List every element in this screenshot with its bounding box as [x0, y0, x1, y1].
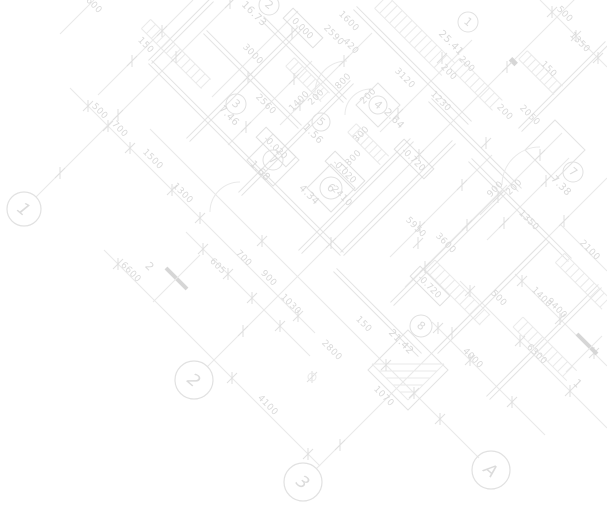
dimension-label: 700	[109, 120, 129, 140]
dimension-label: 2100	[577, 238, 601, 262]
svg-text:-0.720: -0.720	[415, 273, 443, 301]
grid-marker: 2	[175, 361, 213, 399]
dimension-label: 200	[438, 63, 458, 83]
dimension-label: 1500	[140, 147, 164, 171]
dimension-label: 1030	[278, 292, 302, 316]
svg-text:8: 8	[414, 319, 428, 333]
svg-text:5: 5	[314, 115, 328, 129]
elevation-mark: -0.720	[410, 266, 450, 306]
svg-text:4: 4	[371, 98, 385, 112]
blueprint-page: 2600150500700150013003000256016002590420…	[0, 0, 607, 506]
dimension-label: 6600	[118, 260, 142, 284]
dimension-label: 500	[554, 5, 574, 25]
dimension-label: 9400	[544, 296, 568, 320]
dimension-label: 300	[352, 125, 372, 145]
svg-text:25.41: 25.41	[436, 29, 465, 58]
svg-text:2: 2	[183, 370, 204, 392]
dimension-label: 2600	[79, 0, 103, 16]
svg-text:-0.720: -0.720	[399, 146, 427, 174]
room-marker: 77.38	[548, 162, 583, 199]
dimension-ticks	[55, 0, 603, 460]
room-marker: 821.42	[386, 315, 432, 357]
svg-text:2: 2	[142, 259, 156, 273]
room-marker: 216.73	[239, 0, 279, 29]
dimension-label: 3000	[240, 42, 264, 66]
svg-text:3: 3	[229, 97, 243, 111]
svg-text:1: 1	[13, 199, 34, 221]
svg-text:7.38: 7.38	[548, 174, 573, 199]
svg-text:2: 2	[262, 0, 276, 12]
grid-marker: 1	[7, 192, 41, 226]
dimension-label: 605	[207, 257, 227, 277]
elevation-mark: -0.720	[394, 139, 434, 179]
grid-marker: A	[472, 451, 510, 489]
dimension-label: 700	[233, 249, 253, 269]
room-marker: 37.46	[216, 94, 246, 129]
section-marker: 1	[566, 334, 602, 391]
dimension-label: 1300	[170, 181, 194, 205]
dimension-label: 1350	[567, 30, 591, 54]
dimension-label: 500	[488, 289, 508, 309]
dimension-label: 200	[494, 103, 514, 123]
room-marker: 51.56	[300, 113, 330, 147]
floor-plan-canvas: 2600150500700150013003000256016002590420…	[0, 0, 607, 506]
dimension-label: 3600	[433, 231, 457, 255]
section-markers: 21	[142, 255, 602, 391]
room-marker: 42.64	[369, 96, 406, 132]
dimension-label: 150	[353, 315, 373, 335]
dimension-label: 2800	[319, 338, 343, 362]
dimension-label: 150	[538, 60, 558, 80]
dimension-label: 900	[258, 269, 278, 289]
svg-text:A: A	[479, 459, 502, 482]
dimension-label: 150	[135, 36, 155, 56]
dimension-label: 3120	[392, 66, 416, 90]
dimension-label: 5950	[403, 215, 427, 239]
svg-text:21.42: 21.42	[386, 328, 415, 357]
dimension-label: 420	[340, 37, 360, 57]
svg-text:1: 1	[461, 15, 475, 29]
dimension-label: 500	[89, 102, 109, 122]
grid-marker: 3	[284, 463, 322, 501]
dimension-label: 1070	[371, 384, 395, 408]
svg-text:4.34: 4.34	[296, 183, 321, 208]
dimension-label: 4000	[460, 346, 484, 370]
section-marker: 2	[142, 255, 200, 302]
construction-lines	[36, 0, 607, 469]
dimension-label: 800	[334, 72, 354, 92]
dimension-label: 1230	[428, 89, 452, 113]
dimension-label: 4100	[255, 393, 279, 417]
svg-text:3: 3	[292, 472, 313, 494]
dimension-label: 1350	[516, 208, 540, 232]
